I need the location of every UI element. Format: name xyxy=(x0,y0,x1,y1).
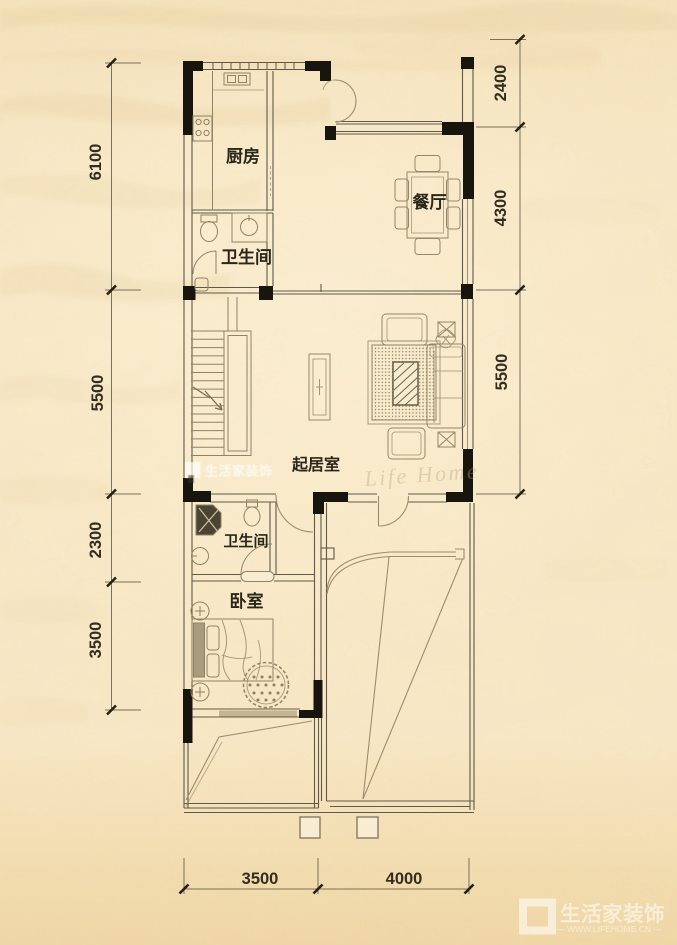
svg-text:5500: 5500 xyxy=(89,375,107,412)
svg-text:2400: 2400 xyxy=(492,65,510,102)
svg-text:生活家装饰: 生活家装饰 xyxy=(560,902,665,926)
svg-text:4000: 4000 xyxy=(386,870,423,888)
svg-text:卧室: 卧室 xyxy=(230,591,264,611)
svg-text:卫生间: 卫生间 xyxy=(221,247,272,267)
svg-text:3500: 3500 xyxy=(242,870,279,888)
svg-text:3500: 3500 xyxy=(87,622,105,659)
svg-text:餐厅: 餐厅 xyxy=(413,192,447,212)
svg-text:2300: 2300 xyxy=(87,522,105,559)
svg-text:— WWW.LIFEHOME.CN —: — WWW.LIFEHOME.CN — xyxy=(556,924,662,934)
svg-text:起居室: 起居室 xyxy=(291,455,340,474)
svg-text:5500: 5500 xyxy=(493,354,511,391)
svg-text:生活家装饰: 生活家装饰 xyxy=(205,464,273,479)
svg-text:6100: 6100 xyxy=(87,144,105,181)
svg-text:厨房: 厨房 xyxy=(226,146,260,166)
svg-text:卫生间: 卫生间 xyxy=(223,532,268,550)
svg-text:4300: 4300 xyxy=(492,190,510,227)
